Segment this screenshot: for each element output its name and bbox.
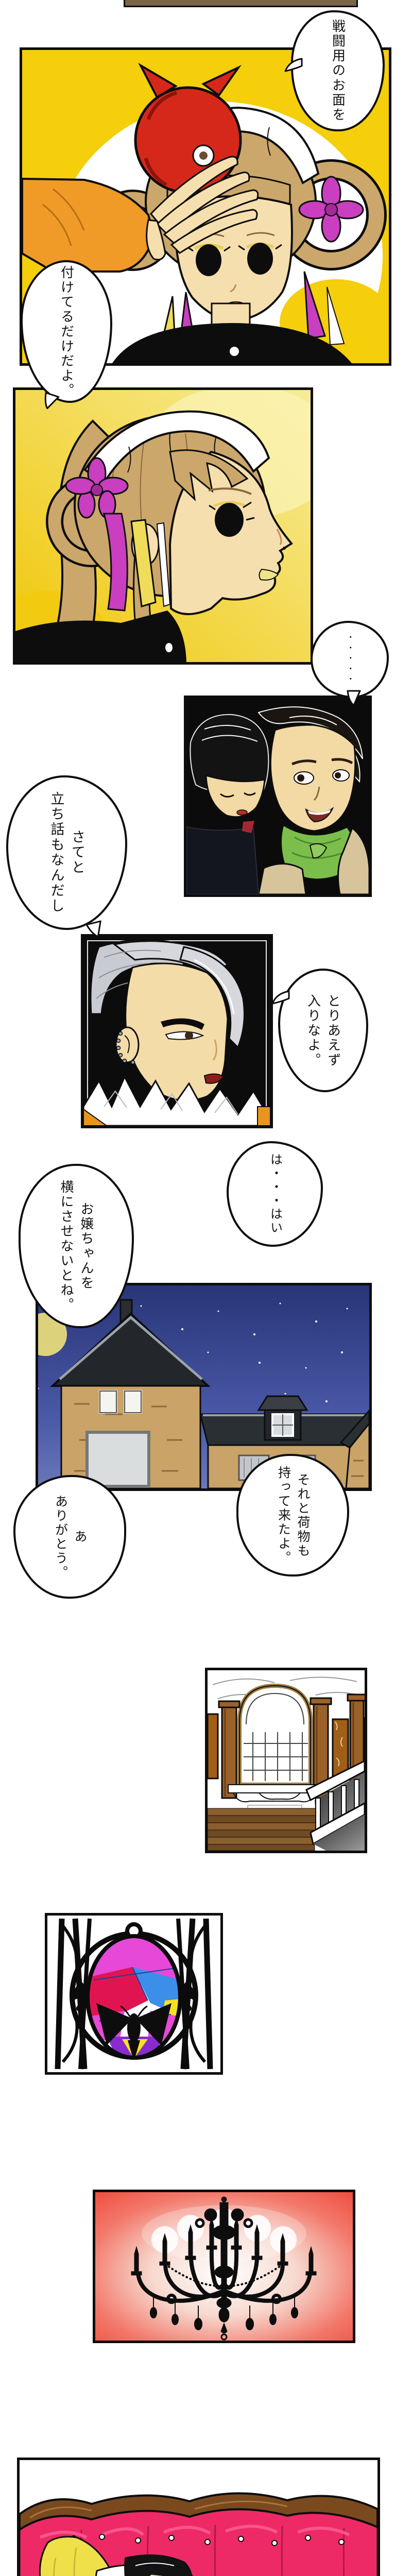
sleeping-girl-art: [20, 2460, 377, 2576]
speech-bubble-come-in: とりあえず 入りなよ。: [278, 969, 368, 1092]
panel-girl-profile: [13, 387, 313, 665]
speech-bubble-brought-luggage: それと荷物も 持って来たよ。: [236, 1454, 349, 1577]
two-visitors-art: [186, 698, 369, 894]
speech-bubble-silence: ・・・・・: [311, 621, 389, 698]
bubble-text: は・・・はい: [266, 1153, 284, 1234]
bubble-text: 戦闘用のお面を: [328, 19, 348, 122]
previous-panel-edge: [124, 0, 358, 7]
panel-chandelier: [93, 2190, 355, 2343]
speech-bubble-thanks: あ ありがとう。: [13, 1475, 126, 1599]
bubble-text: お嬢ちゃんを 横にさせないとね。: [56, 1180, 96, 1312]
bubble-text: 付けてるだけだよ。: [57, 265, 77, 398]
bubble-text: さてと 立ち話もなんだし: [46, 791, 88, 914]
panel-stained-glass: [45, 1913, 223, 2075]
panel-sleeping-girl: [17, 2458, 380, 2576]
comic-page: 戦闘用のお面を 付けてるだけだよ。: [0, 0, 412, 2576]
speech-bubble-standing-talk: さてと 立ち話もなんだし: [6, 775, 127, 930]
stained-glass-art: [47, 1916, 220, 2072]
bubble-text: あ ありがとう。: [50, 1495, 89, 1580]
bubble-text: ・・・・・: [344, 633, 356, 685]
speech-bubble-yes: は・・・はい: [227, 1141, 323, 1247]
panel-white-haired-man: [81, 934, 273, 1128]
chandelier-art: [95, 2192, 353, 2341]
bubble-tail: [284, 57, 303, 73]
bubble-tail: [271, 989, 290, 1006]
bubble-text: それと荷物も 持って来たよ。: [273, 1466, 312, 1565]
girl-profile-art: [15, 390, 311, 662]
white-haired-man-art: [83, 937, 270, 1126]
bubble-text: とりあえず 入りなよ。: [303, 994, 344, 1067]
speech-bubble-just-wearing: 付けてるだけだよ。: [21, 260, 112, 403]
stairs: [208, 1808, 330, 1851]
bubble-tail: [345, 690, 363, 706]
panel-two-visitors: [184, 696, 372, 897]
panel-entrance-hall: [205, 1668, 367, 1853]
entrance-hall-art: [208, 1670, 365, 1851]
